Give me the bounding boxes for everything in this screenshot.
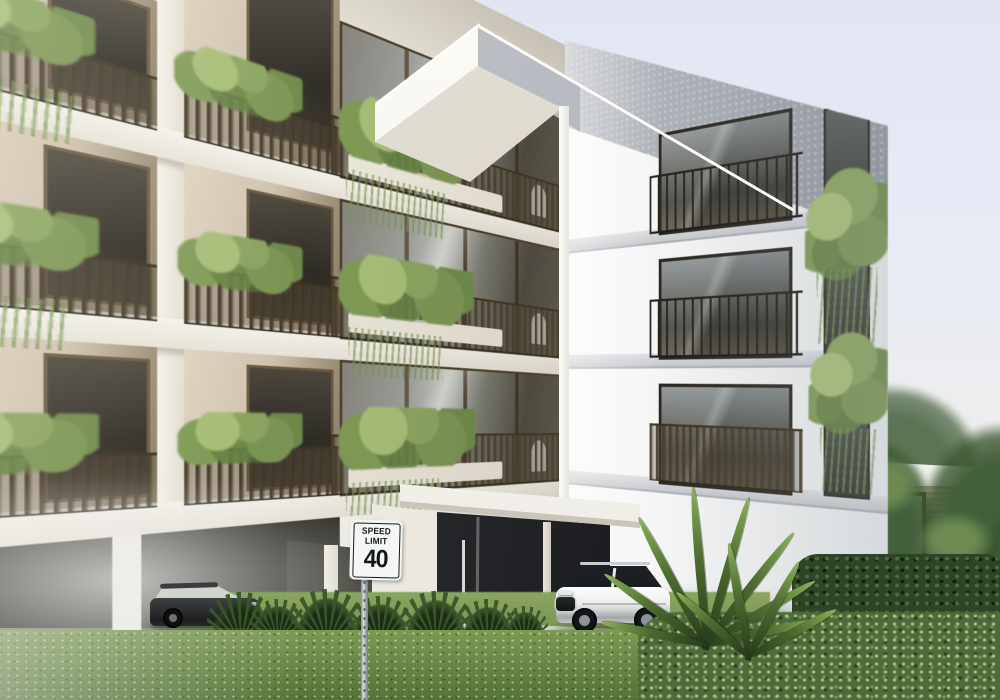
sign-value: 40: [352, 546, 400, 572]
juliet-railing: [650, 290, 803, 357]
sign-post: [361, 560, 368, 700]
hanging-vines: [820, 427, 876, 495]
car-headlight: [558, 590, 574, 596]
balcony-plants: [339, 406, 476, 471]
car-side-crease: [582, 603, 666, 605]
balcony-plants: [0, 412, 99, 478]
corner-pier: [559, 106, 569, 602]
architectural-render-scene: SPEED LIMIT 40: [0, 0, 1000, 700]
speed-limit-sign: SPEED LIMIT 40: [349, 519, 403, 580]
car-grille: [556, 597, 575, 611]
ground-cover-plants: [638, 612, 1000, 700]
suv-wheel-hub: [169, 614, 177, 622]
car-wheel-hub: [579, 615, 590, 626]
car-roof-rails: [580, 562, 650, 565]
hanging-vines: [348, 327, 443, 381]
balcony-plants: [177, 412, 302, 466]
lawn-mist-fade: [0, 628, 300, 700]
